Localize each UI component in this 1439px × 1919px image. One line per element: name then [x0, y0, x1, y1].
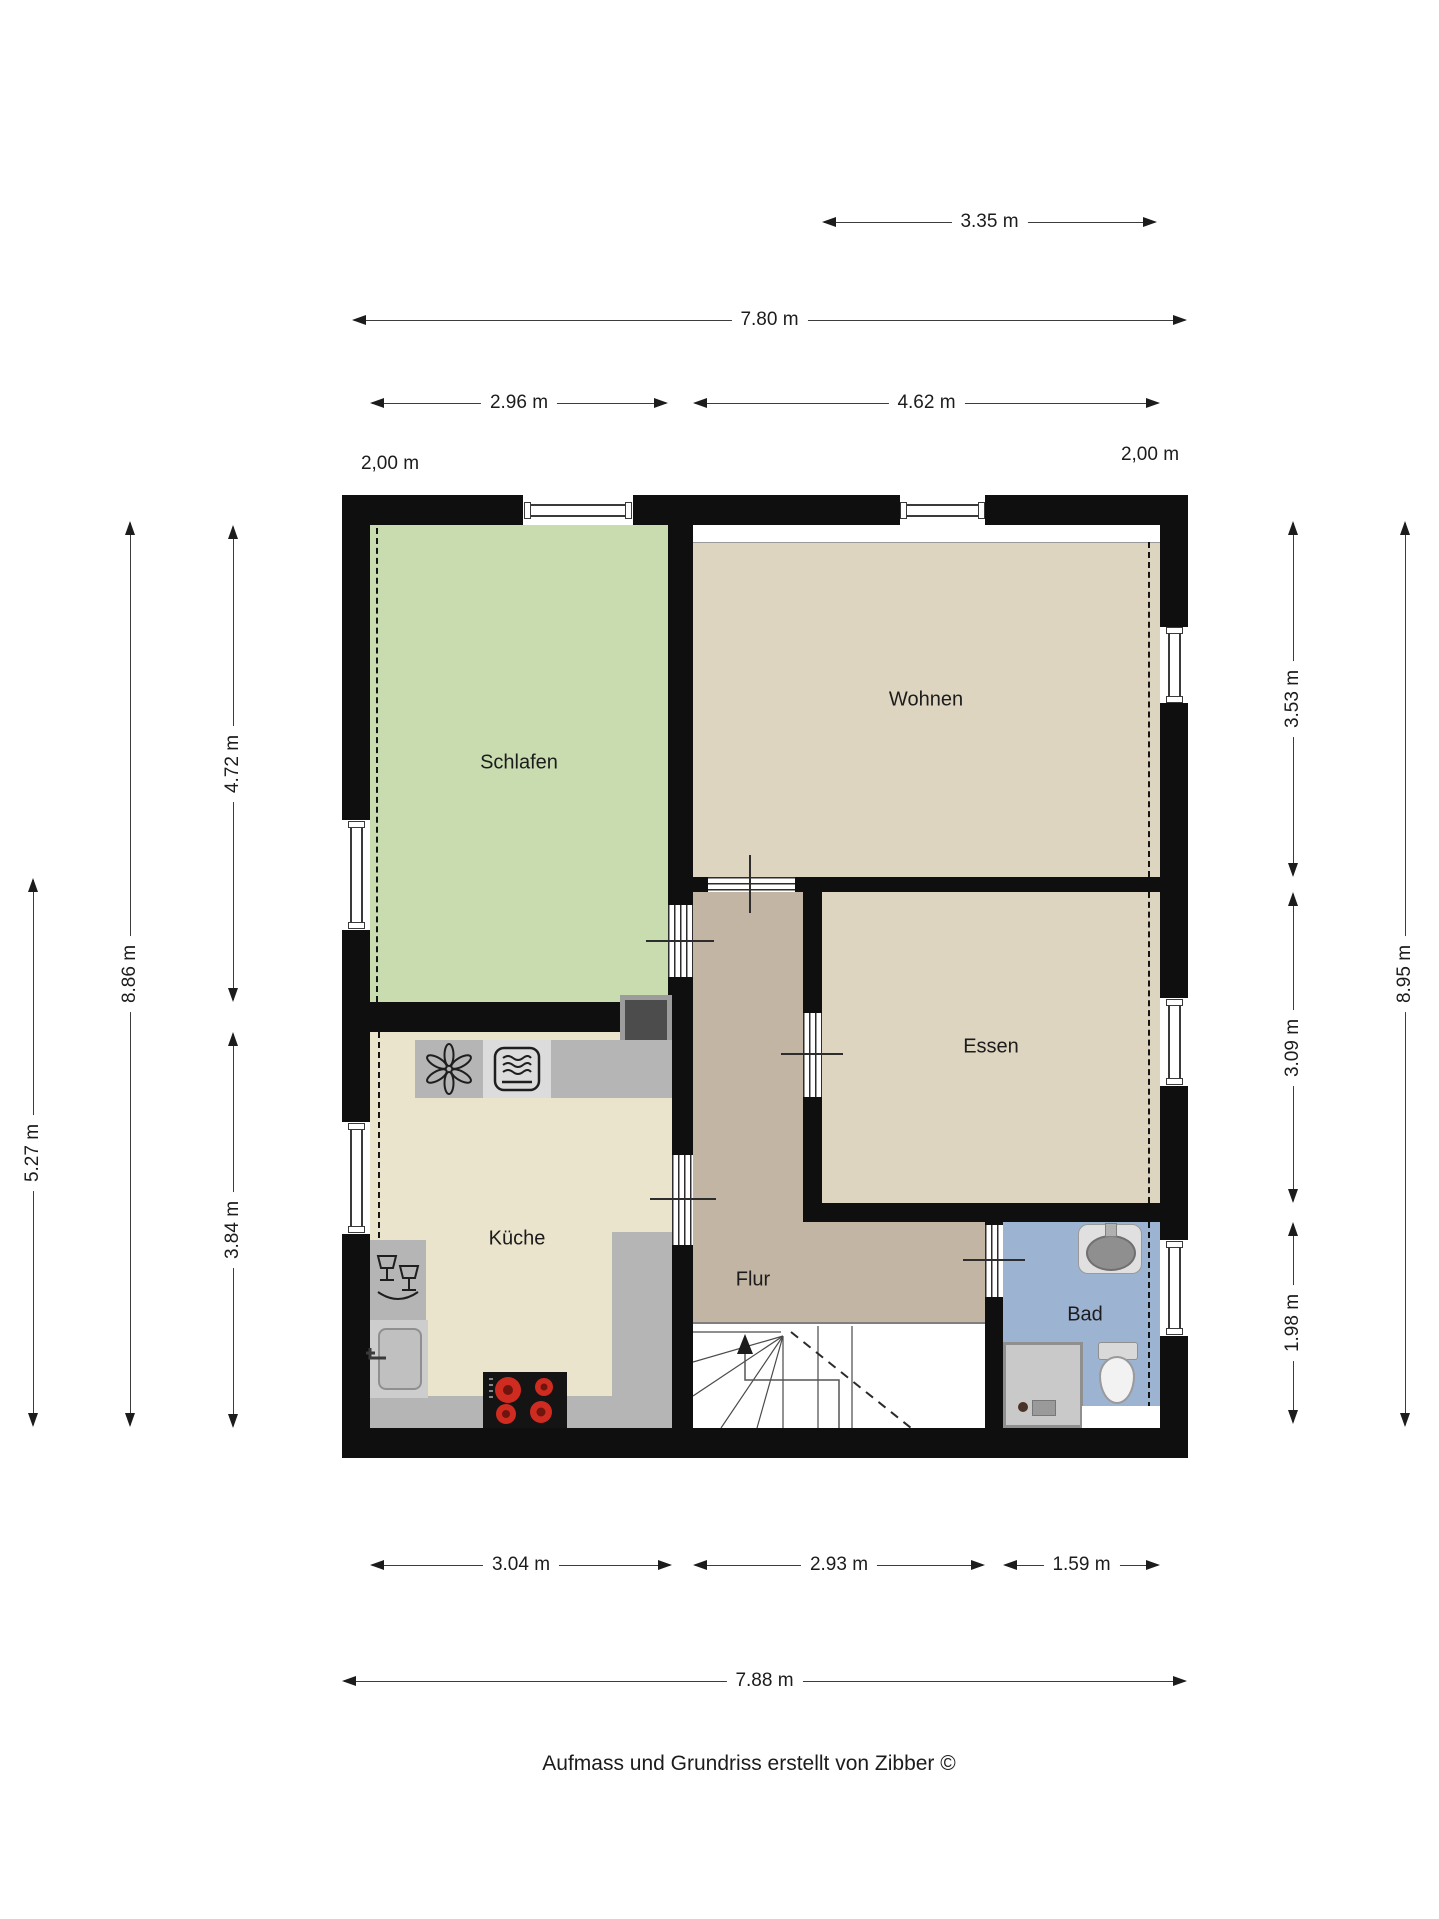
window-schlafen-left-icon	[342, 820, 370, 930]
window-bad-right-icon	[1160, 1240, 1188, 1336]
extractor-fan-icon	[419, 1042, 479, 1096]
door-flur-bad-icon	[985, 1225, 1003, 1297]
door-kueche-flur-icon	[672, 1155, 693, 1245]
shower-handle-icon	[1032, 1400, 1056, 1416]
knee-wall-line-bad	[1148, 1222, 1150, 1428]
oven-icon	[489, 1044, 545, 1096]
wall-schlafen-kueche	[342, 1002, 620, 1032]
dimension-schlafen-width: 2.96 m	[370, 391, 668, 415]
stairs	[693, 1322, 985, 1428]
room-label-essen: Essen	[963, 1036, 1019, 1059]
wall-wohnen-essen	[822, 877, 1160, 892]
window-kueche-left-icon	[342, 1122, 370, 1234]
dimension-flur-width: 2.93 m	[693, 1553, 985, 1577]
room-label-wohnen: Wohnen	[889, 689, 963, 712]
dimension-overall-width-top: 7.80 m	[352, 308, 1187, 332]
dimension-overall-height-right: 8.95 m	[1393, 521, 1417, 1427]
dimension-wohnen-height: 3.53 m	[1281, 521, 1305, 877]
window-essen-right-icon	[1160, 998, 1188, 1086]
door-wohnen-flur-icon	[708, 877, 795, 892]
wall-exterior-top	[342, 495, 1187, 525]
knee-wall-height-left: 2,00 m	[361, 453, 419, 475]
door-flur-bad-leaf	[963, 1259, 1025, 1261]
wall-exterior-bottom	[342, 1428, 1187, 1458]
dimension-lower-part-height: 5.27 m	[21, 878, 45, 1427]
knee-wall-height-right: 2,00 m	[1121, 444, 1179, 466]
room-label-bad: Bad	[1067, 1304, 1103, 1327]
knee-wall-line-schlafen	[376, 528, 378, 1002]
wall-essen-bottom	[803, 1203, 1160, 1222]
floorplan-canvas: Schlafen Wohnen Essen Küche Flur Bad 2,0…	[0, 0, 1439, 1919]
dimension-essen-height: 3.09 m	[1281, 892, 1305, 1203]
shower-mixer-icon	[1018, 1402, 1028, 1412]
room-label-schlafen: Schlafen	[480, 752, 558, 775]
knee-wall-line-essen	[1148, 892, 1150, 1203]
dimension-wohnen-width: 4.62 m	[693, 391, 1160, 415]
door-flur-essen-icon	[803, 1013, 822, 1097]
washbasin-tap-icon	[1105, 1223, 1117, 1237]
kitchen-faucet-icon	[366, 1344, 396, 1370]
room-label-flur: Flur	[736, 1269, 770, 1292]
hob	[483, 1372, 567, 1428]
wohnen-sill-strip	[693, 525, 1160, 543]
door-schlafen-flur-leaf	[646, 940, 714, 942]
wall-exterior-left	[342, 495, 370, 1458]
bad-void-notch	[1082, 1406, 1160, 1428]
window-wohnen-right-icon	[1160, 627, 1188, 703]
dimension-bad-height: 1.98 m	[1281, 1222, 1305, 1424]
window-wohnen-top-icon	[900, 495, 985, 525]
dimension-overall-width-bottom: 7.88 m	[342, 1669, 1187, 1693]
caption: Aufmass und Grundriss erstellt von Zibbe…	[542, 1752, 955, 1776]
dimension-essen-width-top: 3.35 m	[822, 210, 1157, 234]
dimension-kueche-height: 3.84 m	[221, 1032, 245, 1428]
door-wohnen-flur-leaf	[749, 855, 751, 913]
washbasin-bowl	[1086, 1235, 1136, 1271]
door-kueche-flur-leaf	[650, 1198, 716, 1200]
door-flur-essen-leaf	[781, 1053, 843, 1055]
room-label-kueche: Küche	[489, 1228, 546, 1251]
dimension-kueche-width: 3.04 m	[370, 1553, 672, 1577]
washbasin	[1078, 1224, 1142, 1274]
hob-icon	[483, 1372, 567, 1428]
dimension-overall-height-left: 8.86 m	[118, 521, 142, 1427]
window-schlafen-top-icon	[523, 495, 633, 525]
dimension-schlafen-height: 4.72 m	[221, 525, 245, 1002]
dishwasher-icon	[372, 1248, 424, 1314]
dimension-bad-width: 1.59 m	[1003, 1553, 1160, 1577]
knee-wall-line-wohnen	[1148, 542, 1150, 877]
